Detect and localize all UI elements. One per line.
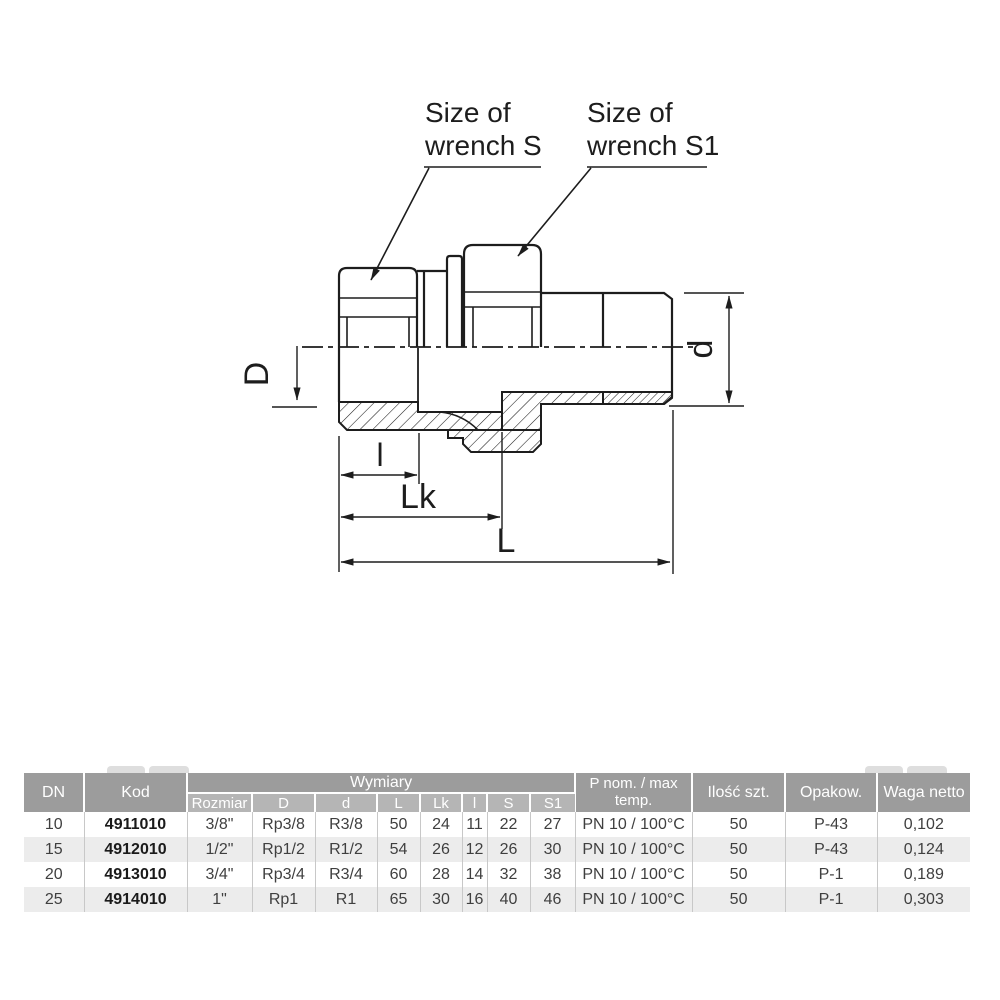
cell-S: 22 [487,812,530,837]
cell-D: Rp1/2 [252,837,315,862]
table-row: 25 4914010 1" Rp1 R1 65 30 16 40 46 PN 1… [24,887,970,912]
cell-L: 60 [377,862,420,887]
cell-S: 26 [487,837,530,862]
callout-leaders [371,167,707,280]
section-tailpiece [502,392,603,430]
section-left-nut-wall [339,402,502,430]
cell-dn: 15 [24,837,84,862]
col-header-wymiary: Wymiary [187,773,575,793]
cell-L: 65 [377,887,420,912]
cell-d: R1/2 [315,837,377,862]
cell-Lk: 24 [420,812,462,837]
technical-drawing: Size of wrench S Size of wrench S1 D d l… [0,0,1000,760]
table-row: 10 4911010 3/8" Rp3/8 R3/8 50 24 11 22 2… [24,812,970,837]
cell-kod: 4914010 [84,887,187,912]
table-row: 20 4913010 3/4" Rp3/4 R3/4 60 28 14 32 3… [24,862,970,887]
datasheet-page: Size of wrench S Size of wrench S1 D d l… [0,0,1000,1000]
wrench-s-label-line2: wrench S [424,130,542,161]
cell-L: 50 [377,812,420,837]
left-nut [339,268,417,347]
cell-D: Rp1 [252,887,315,912]
cell-ilosc: 50 [692,862,785,887]
dim-d-label: d [682,340,720,359]
cell-ilosc: 50 [692,812,785,837]
col-header-dn: DN [24,773,84,812]
hex-facets [339,292,541,347]
cell-S1: 46 [530,887,575,912]
dim-L-label: L [497,522,516,560]
cell-opakow: P-1 [785,862,877,887]
cell-waga: 0,303 [877,887,970,912]
table-row: 15 4912010 1/2" Rp1/2 R1/2 54 26 12 26 3… [24,837,970,862]
col-header-kod: Kod [84,773,187,812]
cell-l: 12 [462,837,487,862]
col-header-rozmiar: Rozmiar [187,793,252,812]
col-header-opakow: Opakow. [785,773,877,812]
cell-dn: 10 [24,812,84,837]
male-pipe [541,293,672,404]
cell-kod: 4911010 [84,812,187,837]
wrench-s-leader [371,167,541,280]
cell-pnom: PN 10 / 100°C [575,887,692,912]
wrench-s1-leader [518,167,707,256]
cell-opakow: P-1 [785,887,877,912]
cell-opakow: P-43 [785,812,877,837]
wrench-s1-label-line2: wrench S1 [586,130,719,161]
cell-ilosc: 50 [692,837,785,862]
wrench-s-label-line1: Size of [425,97,511,128]
cell-l: 11 [462,812,487,837]
col-header-pnom: P nom. / max temp. [575,773,692,812]
wrench-s1-label-line1: Size of [587,97,673,128]
cell-rozmiar: 3/8" [187,812,252,837]
cell-D: Rp3/4 [252,862,315,887]
union-nut [464,245,541,347]
cell-Lk: 30 [420,887,462,912]
cell-L: 54 [377,837,420,862]
cell-pnom: PN 10 / 100°C [575,837,692,862]
section-male-thread-wall [603,392,672,404]
cell-S: 32 [487,862,530,887]
cell-ilosc: 50 [692,887,785,912]
cell-pnom: PN 10 / 100°C [575,862,692,887]
cell-pnom: PN 10 / 100°C [575,812,692,837]
col-header-l: l [462,793,487,812]
cross-section [339,392,672,452]
cell-waga: 0,189 [877,862,970,887]
cell-d: R1 [315,887,377,912]
cell-d: R3/8 [315,812,377,837]
step-cylinder [417,271,447,347]
cell-l: 16 [462,887,487,912]
cell-kod: 4913010 [84,862,187,887]
cell-rozmiar: 1/2" [187,837,252,862]
dim-D-label: D [238,362,276,387]
cell-d: R3/4 [315,862,377,887]
col-header-d: d [315,793,377,812]
cell-rozmiar: 1" [187,887,252,912]
cell-S1: 30 [530,837,575,862]
col-header-Lk: Lk [420,793,462,812]
cell-D: Rp3/8 [252,812,315,837]
cell-dn: 25 [24,887,84,912]
col-header-waga: Waga netto [877,773,970,812]
product-table: DN Kod Wymiary P nom. / max temp. Ilość … [24,773,970,912]
dim-Lk-label: Lk [400,478,437,516]
cell-S1: 27 [530,812,575,837]
cell-kod: 4912010 [84,837,187,862]
cell-rozmiar: 3/4" [187,862,252,887]
cell-S1: 38 [530,862,575,887]
cell-Lk: 26 [420,837,462,862]
cell-opakow: P-43 [785,837,877,862]
collar-ring [447,256,462,347]
col-header-ilosc: Ilość szt. [692,773,785,812]
cell-Lk: 28 [420,862,462,887]
section-nut-bottom [448,430,541,452]
col-header-L: L [377,793,420,812]
dim-l-label: l [376,437,383,473]
cell-l: 14 [462,862,487,887]
cell-dn: 20 [24,862,84,887]
col-header-D: D [252,793,315,812]
fitting-outline [339,245,672,412]
col-header-S1: S1 [530,793,575,812]
cell-S: 40 [487,887,530,912]
col-header-S: S [487,793,530,812]
cell-waga: 0,124 [877,837,970,862]
cell-waga: 0,102 [877,812,970,837]
